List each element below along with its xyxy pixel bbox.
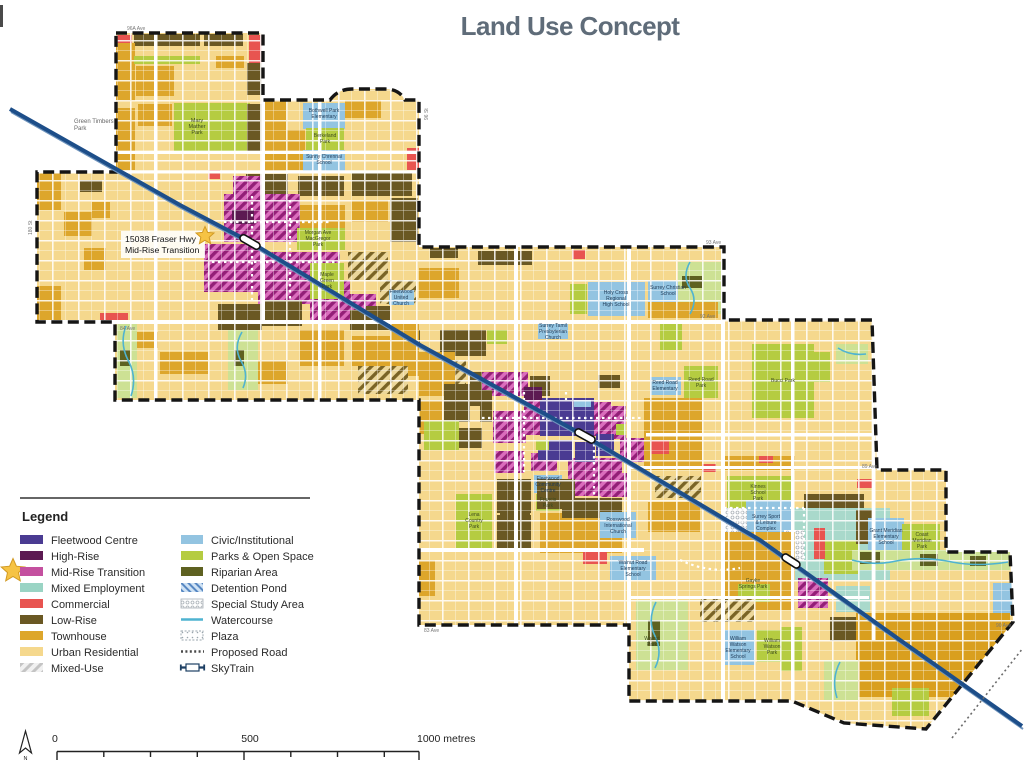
svg-text:Elementary: Elementary [311, 114, 337, 120]
svg-text:School: School [625, 572, 640, 578]
svg-text:High-Rise: High-Rise [51, 551, 99, 563]
svg-text:96 St: 96 St [424, 108, 430, 120]
svg-text:Civic/Institutional: Civic/Institutional [211, 535, 294, 547]
svg-text:Park: Park [696, 383, 707, 389]
svg-text:89 Ave: 89 Ave [862, 464, 877, 470]
svg-text:Low-Rise: Low-Rise [51, 615, 97, 627]
svg-text:Urban Residential: Urban Residential [51, 647, 138, 659]
svg-text:15038 Fraser Hwy: 15038 Fraser Hwy [125, 234, 197, 244]
svg-text:Riparian Area: Riparian Area [211, 567, 279, 579]
svg-text:Complex: Complex [756, 526, 776, 532]
svg-text:Park: Park [320, 139, 331, 145]
svg-text:Park: Park [313, 242, 324, 248]
svg-text:93 Ave: 93 Ave [706, 240, 721, 246]
svg-text:Detention Pond: Detention Pond [211, 583, 287, 595]
svg-text:Parks & Open Space: Parks & Open Space [211, 551, 314, 563]
svg-text:Park: Park [469, 524, 480, 530]
svg-text:Watercourse: Watercourse [211, 615, 273, 627]
svg-text:96A Ave: 96A Ave [127, 26, 145, 32]
svg-text:83 Ave: 83 Ave [424, 628, 439, 634]
svg-text:Park: Park [917, 544, 928, 550]
svg-text:Mixed Employment: Mixed Employment [51, 583, 145, 595]
svg-text:Park: Park [191, 130, 203, 136]
svg-text:Special Study Area: Special Study Area [211, 599, 305, 611]
svg-text:Elementary: Elementary [652, 386, 678, 392]
svg-text:92 Ave: 92 Ave [700, 314, 715, 320]
svg-text:Commercial: Commercial [51, 599, 110, 611]
svg-text:Park: Park [543, 503, 554, 509]
svg-text:Proposed Road: Proposed Road [211, 647, 287, 659]
svg-text:Legend: Legend [22, 509, 68, 524]
svg-text:Church: Church [393, 301, 409, 307]
svg-text:School: School [730, 654, 745, 660]
svg-text:180 St: 180 St [28, 220, 34, 235]
svg-text:School: School [316, 160, 331, 166]
svg-text:Centre: Centre [540, 488, 555, 494]
svg-text:Park: Park [74, 126, 87, 132]
svg-text:High School: High School [603, 302, 630, 308]
svg-text:Fleetwood Centre: Fleetwood Centre [51, 535, 138, 547]
svg-text:Townhouse: Townhouse [51, 631, 107, 643]
svg-text:Mixed-Use: Mixed-Use [51, 663, 104, 675]
svg-text:SkyTrain: SkyTrain [211, 663, 254, 675]
svg-text:Park: Park [322, 284, 333, 290]
svg-text:Mid-Rise Transition: Mid-Rise Transition [125, 245, 200, 255]
svg-text:Springs Park: Springs Park [739, 584, 768, 590]
svg-text:90 Ave: 90 Ave [996, 623, 1011, 629]
svg-text:Park: Park [767, 650, 778, 656]
svg-text:School: School [878, 540, 893, 546]
svg-text:School: School [660, 291, 675, 297]
svg-text:Mid-Rise Transition: Mid-Rise Transition [51, 567, 145, 579]
svg-text:500: 500 [241, 733, 259, 745]
svg-text:Church: Church [545, 335, 561, 341]
svg-text:Green Timbers: Green Timbers [74, 119, 114, 125]
svg-text:Plaza: Plaza [211, 631, 239, 643]
svg-text:Park: Park [647, 642, 658, 648]
svg-text:84 Ave: 84 Ave [120, 326, 135, 332]
svg-text:Church: Church [610, 529, 626, 535]
svg-text:1000 metres: 1000 metres [417, 733, 475, 745]
svg-text:N: N [24, 756, 28, 762]
svg-text:0: 0 [52, 733, 58, 745]
svg-text:Park: Park [753, 496, 764, 502]
svg-text:Land Use Concept: Land Use Concept [461, 11, 681, 41]
svg-text:Bucci Park: Bucci Park [771, 378, 795, 384]
